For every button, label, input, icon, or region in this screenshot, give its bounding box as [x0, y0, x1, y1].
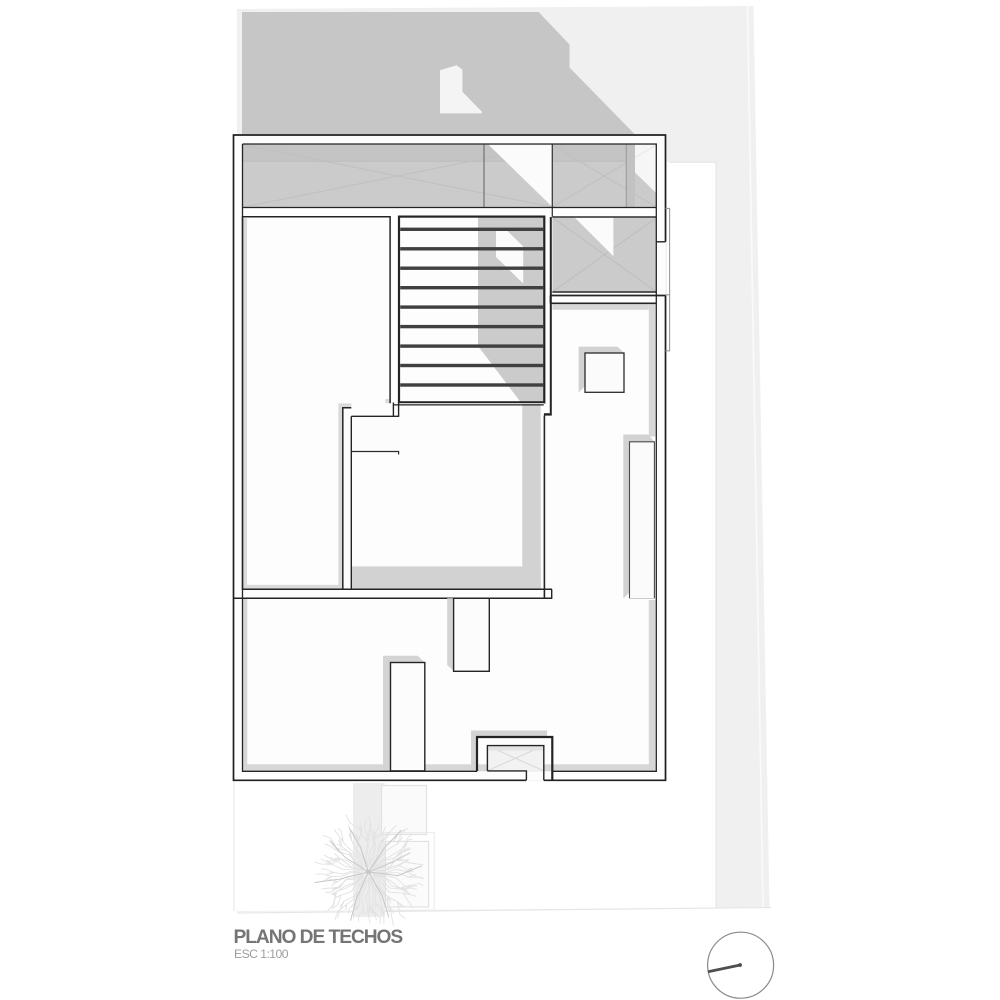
svg-text:PLANO DE TECHOS: PLANO DE TECHOS	[234, 927, 404, 948]
svg-text:ESC 1:100: ESC 1:100	[234, 947, 289, 961]
